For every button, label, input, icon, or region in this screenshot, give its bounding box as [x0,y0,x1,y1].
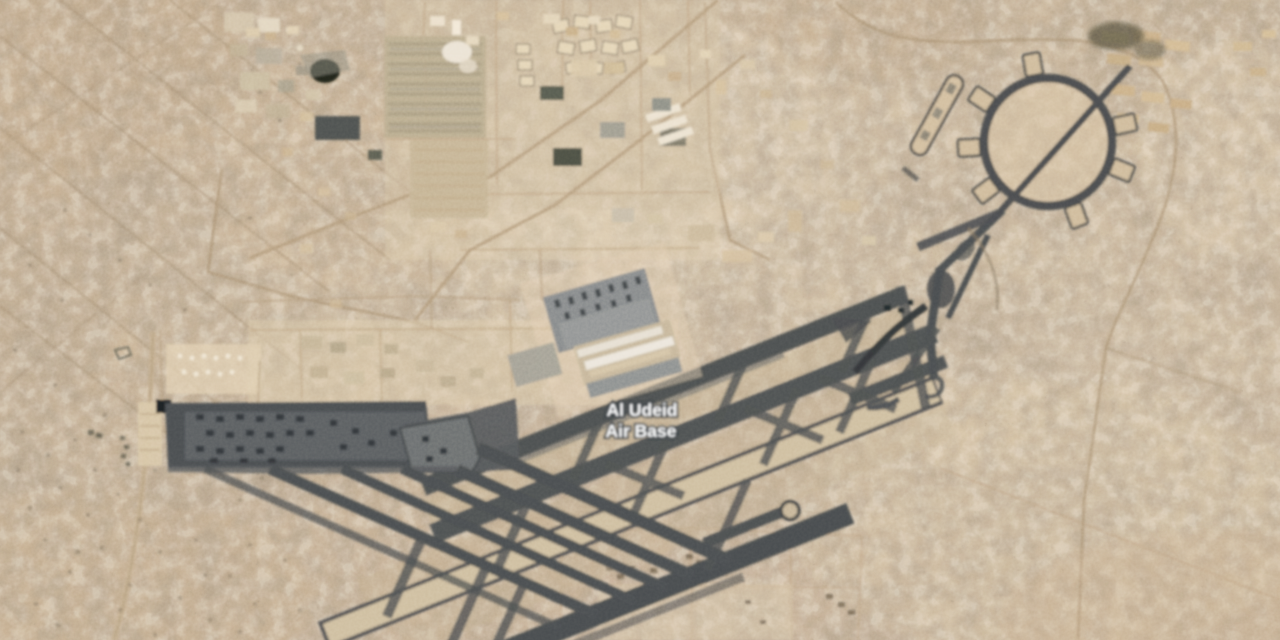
svg-text:Al Udeid: Al Udeid [607,400,678,420]
svg-text:Air Base: Air Base [605,421,676,441]
